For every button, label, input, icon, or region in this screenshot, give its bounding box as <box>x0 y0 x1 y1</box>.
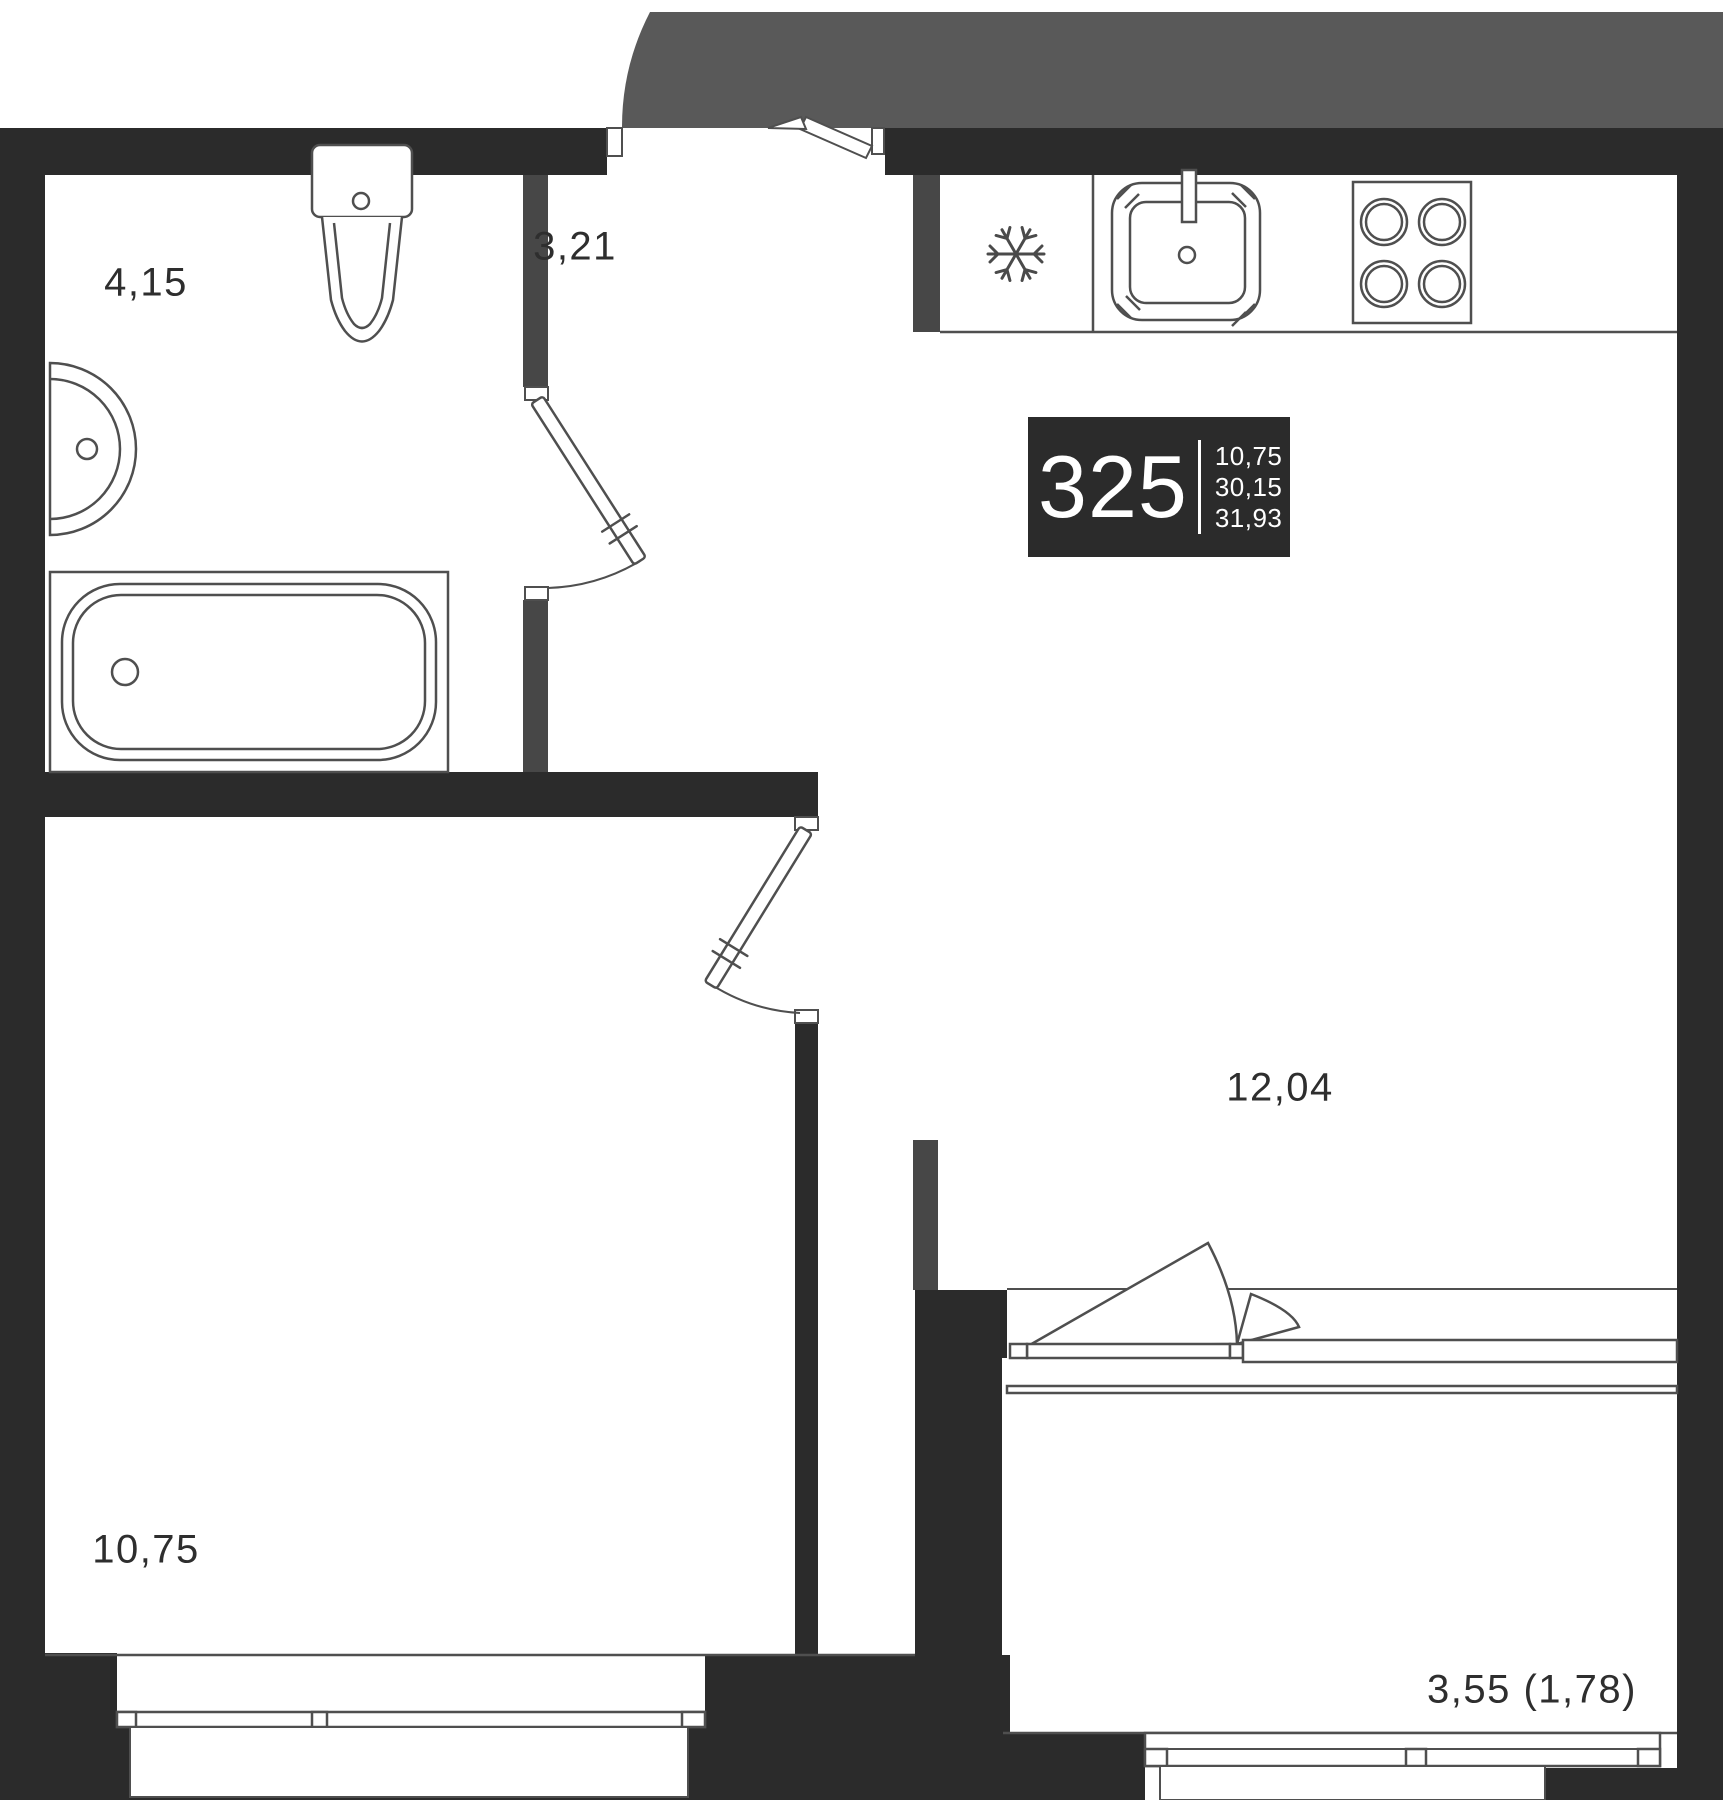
hallway-area-label: 3,21 <box>533 225 617 270</box>
unit-area-total: 31,93 <box>1215 503 1283 534</box>
bedroom-area-label: 10,75 <box>92 1528 200 1573</box>
bathroom-area-label: 4,15 <box>104 261 188 306</box>
balcony-door-icon <box>1007 1243 1677 1393</box>
snowflake-icon <box>988 226 1044 282</box>
floor-plan: 4,15 3,21 12,04 10,75 3,55 (1,78) 325 10… <box>0 0 1723 1800</box>
bedroom-door-icon <box>697 822 820 1013</box>
entry-door-swing-zone <box>622 12 1723 128</box>
kitchen-counter <box>940 175 1677 332</box>
balcony-area-label: 3,55 (1,78) <box>1427 1668 1637 1713</box>
toilet-icon <box>312 145 412 342</box>
bathtub-icon <box>50 572 448 772</box>
floor-plan-drawing <box>0 0 1723 1800</box>
kitchen-sink-icon <box>1112 170 1260 326</box>
partitions <box>523 175 940 1290</box>
unit-area-without-balcony: 30,15 <box>1215 472 1283 503</box>
unit-area-list: 10,75 30,15 31,93 <box>1215 441 1283 534</box>
stove-icon <box>1353 182 1471 323</box>
unit-area-living: 10,75 <box>1215 441 1283 472</box>
washbasin-icon <box>50 363 136 535</box>
unit-box-divider <box>1198 440 1201 534</box>
walls <box>0 128 1723 1800</box>
kitchen-living-area-label: 12,04 <box>1226 1066 1334 1111</box>
unit-info-box: 325 10,75 30,15 31,93 <box>1028 417 1290 557</box>
bathroom-door-icon <box>524 391 654 588</box>
unit-number: 325 <box>1038 443 1188 531</box>
